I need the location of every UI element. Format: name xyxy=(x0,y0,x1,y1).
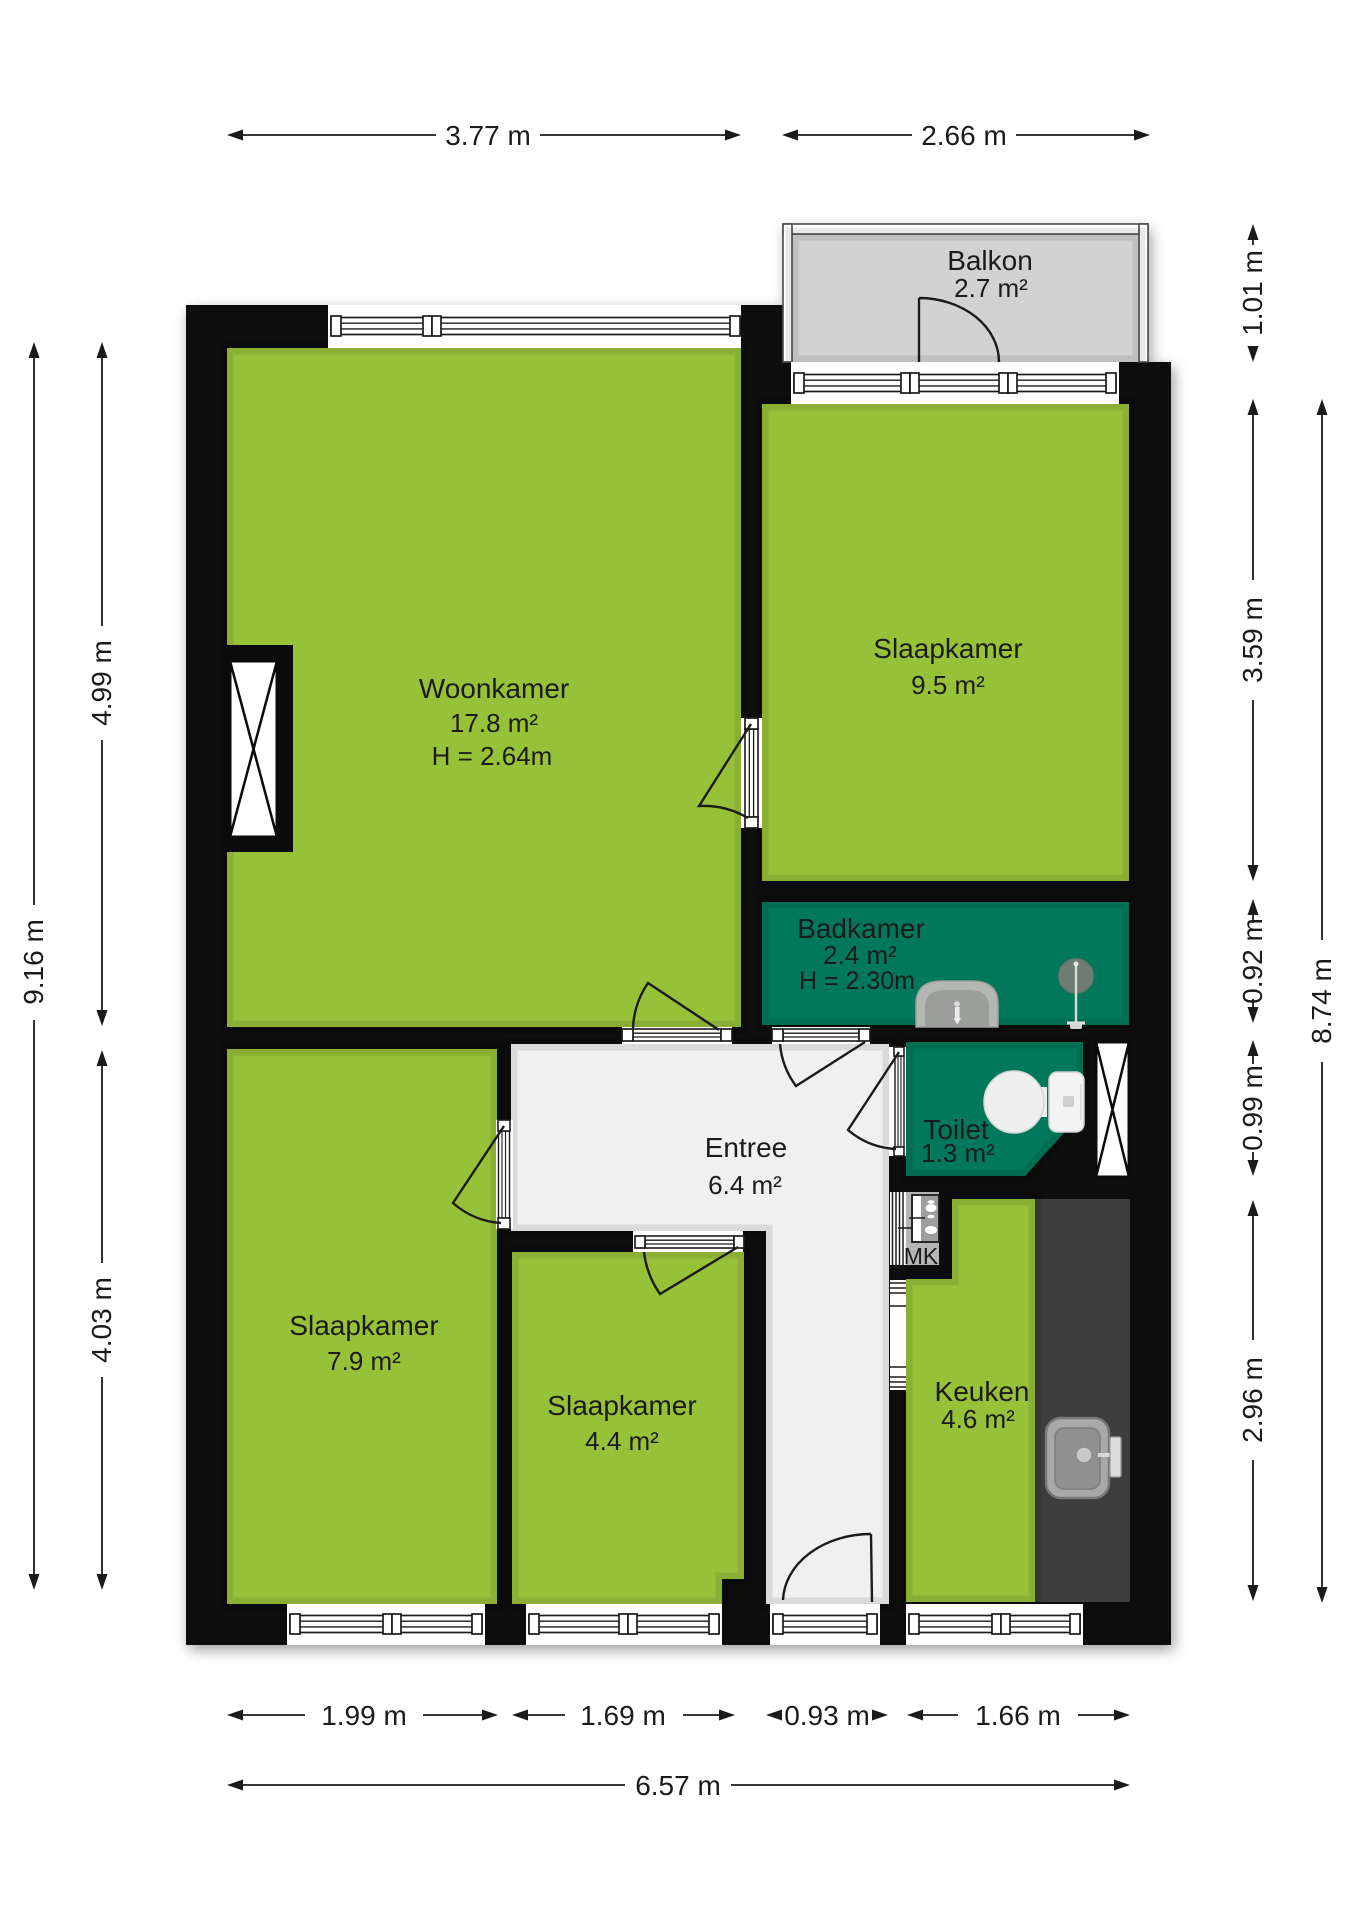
svg-text:17.8 m²: 17.8 m² xyxy=(450,708,538,738)
svg-text:2.96 m: 2.96 m xyxy=(1237,1357,1268,1443)
svg-text:4.4 m²: 4.4 m² xyxy=(585,1426,659,1456)
svg-text:0.93 m: 0.93 m xyxy=(784,1700,870,1731)
svg-text:0.99 m: 0.99 m xyxy=(1237,1065,1268,1151)
svg-text:Slaapkamer: Slaapkamer xyxy=(873,633,1022,664)
svg-text:2.4 m²: 2.4 m² xyxy=(823,940,897,970)
svg-text:7.9 m²: 7.9 m² xyxy=(327,1346,401,1376)
svg-text:H = 2.30m: H = 2.30m xyxy=(799,967,915,995)
svg-text:4.99 m: 4.99 m xyxy=(86,640,117,726)
svg-text:0.92 m: 0.92 m xyxy=(1237,918,1268,1004)
svg-text:1.69 m: 1.69 m xyxy=(580,1700,666,1731)
svg-text:3.59 m: 3.59 m xyxy=(1237,597,1268,683)
svg-text:1.3 m²: 1.3 m² xyxy=(921,1138,995,1168)
svg-text:6.57 m: 6.57 m xyxy=(635,1770,721,1801)
svg-text:3.77 m: 3.77 m xyxy=(445,120,531,151)
svg-text:Slaapkamer: Slaapkamer xyxy=(547,1390,696,1421)
svg-text:Woonkamer: Woonkamer xyxy=(419,673,569,704)
svg-text:1.01 m: 1.01 m xyxy=(1237,250,1268,336)
svg-text:Keuken: Keuken xyxy=(935,1376,1030,1407)
svg-text:H = 2.64m: H = 2.64m xyxy=(432,741,553,771)
svg-text:MK: MK xyxy=(904,1243,939,1269)
svg-text:8.74 m: 8.74 m xyxy=(1306,958,1337,1044)
svg-text:4.03 m: 4.03 m xyxy=(86,1277,117,1363)
svg-text:1.66 m: 1.66 m xyxy=(975,1700,1061,1731)
svg-text:9.5 m²: 9.5 m² xyxy=(911,670,985,700)
svg-text:2.7 m²: 2.7 m² xyxy=(954,273,1028,303)
svg-text:1.99 m: 1.99 m xyxy=(321,1700,407,1731)
svg-text:9.16 m: 9.16 m xyxy=(18,919,49,1005)
svg-text:2.66 m: 2.66 m xyxy=(921,120,1007,151)
svg-text:Entree: Entree xyxy=(705,1132,788,1163)
svg-text:Balkon: Balkon xyxy=(947,245,1033,276)
svg-text:Slaapkamer: Slaapkamer xyxy=(289,1310,438,1341)
svg-text:6.4 m²: 6.4 m² xyxy=(708,1170,782,1200)
svg-text:4.6 m²: 4.6 m² xyxy=(941,1404,1015,1434)
